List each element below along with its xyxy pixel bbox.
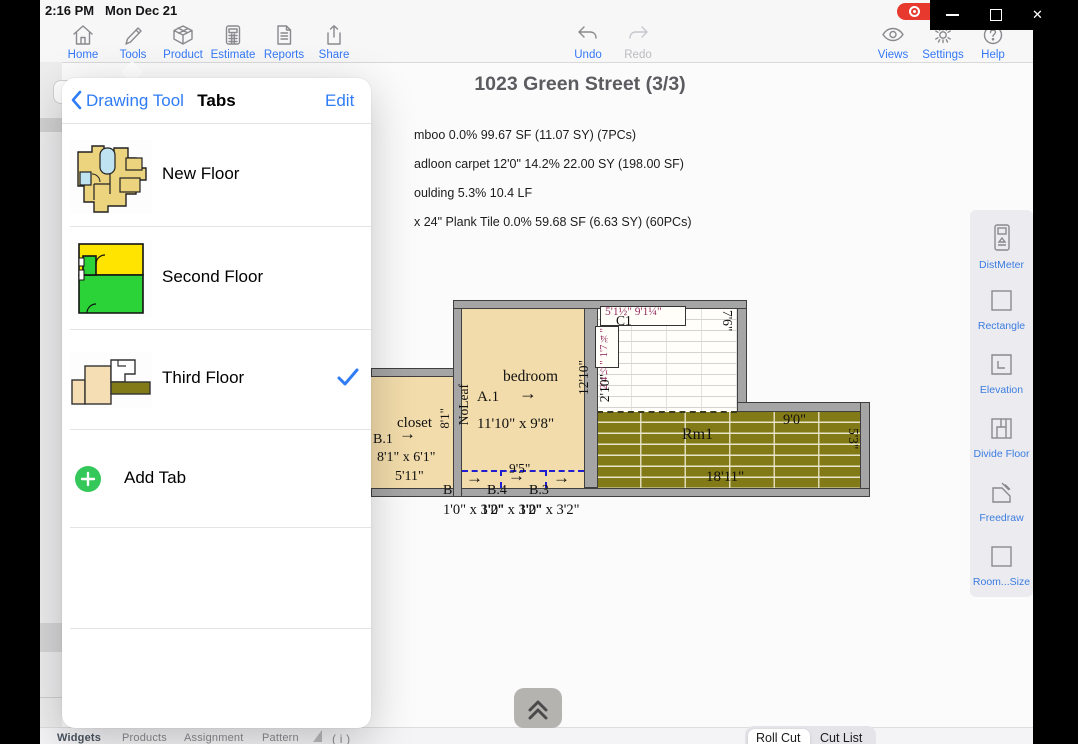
rm1-top-dim: 9'0" <box>783 412 806 429</box>
maximize-icon[interactable] <box>990 9 1002 21</box>
rm1-id: Rm1 <box>682 426 713 444</box>
segment-cut-list[interactable]: Cut List <box>820 731 862 744</box>
add-tab-row[interactable]: Add Tab <box>62 430 371 528</box>
plank-top-dashed-edge <box>597 411 737 413</box>
add-tab-label: Add Tab <box>124 468 186 488</box>
c1-left-dim: 2'10" <box>597 374 613 402</box>
expand-panel-button[interactable] <box>514 688 562 728</box>
segment-roll-cut[interactable]: Roll Cut <box>756 731 800 744</box>
tabs-popover: Drawing Tool Tabs Edit <box>62 78 371 728</box>
noleaf-wall-note: NoLeaf <box>456 384 472 425</box>
bedroom-id: A.1 <box>477 389 499 406</box>
tab-row-new-floor[interactable]: New Floor <box>62 124 371 227</box>
new-floor-thumbnail <box>70 140 152 219</box>
closet-arrow: → <box>399 424 416 444</box>
cut-mode-segmented-control: Roll Cut Cut List <box>745 726 876 744</box>
third-floor-thumbnail <box>70 352 152 413</box>
tab-row-second-floor[interactable]: Second Floor <box>62 228 371 330</box>
door-arrow-right: → <box>553 468 570 488</box>
wall <box>737 402 870 412</box>
c1-id: C1 <box>616 313 632 329</box>
closet-height-dim: 8'1" <box>437 408 453 429</box>
c1-right-dim: 7'6" <box>719 310 735 331</box>
minimize-icon[interactable] <box>946 14 959 16</box>
bedroom-height-dim: 12'10" <box>576 360 592 395</box>
tab-label-new-floor: New Floor <box>162 164 239 184</box>
tab-label-third-floor: Third Floor <box>162 368 244 388</box>
wall <box>737 300 747 412</box>
rm1-right-dim: 5'3" <box>845 428 861 449</box>
app-surface: 2:16 PM Mon Dec 21 Home Tools Product <box>40 0 1033 744</box>
tab-row-third-floor[interactable]: Third Floor <box>62 330 371 430</box>
tab-label-second-floor: Second Floor <box>162 267 263 287</box>
window-controls: ✕ <box>930 0 1078 30</box>
popover-header: Drawing Tool Tabs Edit <box>62 78 371 123</box>
right-letterbox <box>1033 0 1078 744</box>
checkmark-icon <box>336 366 360 393</box>
edit-button[interactable]: Edit <box>325 91 354 111</box>
door-dim: 9'5" <box>509 461 530 477</box>
record-icon <box>909 6 920 17</box>
app-window: 2:16 PM Mon Dec 21 Home Tools Product <box>0 0 1078 744</box>
close-icon[interactable]: ✕ <box>1032 7 1043 23</box>
bedroom-arrow: → <box>519 383 537 404</box>
door-arrow-left: → <box>466 468 483 488</box>
closet-width-dim: 5'11" <box>395 469 424 485</box>
door-label-b3: B.3 <box>529 483 549 499</box>
wall <box>371 368 462 377</box>
closet-id: B.1 <box>373 432 393 448</box>
c1-top-dims: 5'1½" 9'1¼" <box>605 306 662 318</box>
add-icon <box>75 466 101 492</box>
left-letterbox <box>0 0 40 744</box>
bedroom-size: 11'10" x 9'8" <box>477 416 554 433</box>
door-label-b4: B.4 <box>487 483 507 499</box>
wall <box>860 402 870 497</box>
second-floor-thumbnail <box>70 240 152 323</box>
door-size: 1'0" x 3'2" <box>519 502 580 519</box>
rm1-bottom-dim: 18'11" <box>706 469 744 486</box>
closet-size: 8'1" x 6'1" <box>377 450 435 466</box>
